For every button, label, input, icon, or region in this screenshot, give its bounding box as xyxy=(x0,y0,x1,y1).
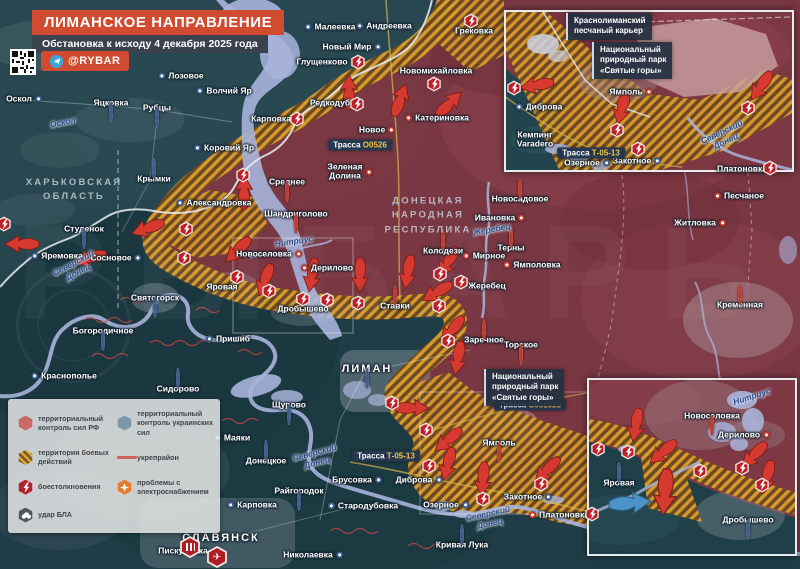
legend-icon-clashes xyxy=(18,480,33,495)
legend-label: территория боевых действий xyxy=(38,448,112,467)
map-title: ЛИМАНСКОЕ НАПРАВЛЕНИЕ xyxy=(32,10,284,35)
map-screenshot: РЫБАРЬ МалеевкаАндреевкаГрековкаНовый Ми… xyxy=(0,0,800,569)
legend-icon-fortified-line xyxy=(117,456,137,459)
inset-map-bottom-right xyxy=(587,378,797,556)
legend-label: территориальный контроль сил РФ xyxy=(38,414,112,433)
title-block: ЛИМАНСКОЕ НАПРАВЛЕНИЕ Обстановка к исход… xyxy=(32,10,284,53)
legend-label: укрепрайон xyxy=(137,453,219,462)
legend-icon-drone-strike xyxy=(18,508,33,523)
legend-label: удар БЛА xyxy=(38,510,112,519)
inset-map-top-right xyxy=(504,10,794,172)
legend-icon-rf-control xyxy=(18,416,33,431)
brand-badge: @RYBAR xyxy=(41,51,129,71)
legend-icon-power-outage xyxy=(117,480,132,495)
legend-label: боестолкновения xyxy=(38,482,112,491)
watermark-emblem xyxy=(16,268,131,383)
legend-label: территориальный контроль украинских сил xyxy=(137,409,219,437)
qr-code xyxy=(10,49,36,75)
legend-label: проблемы с электроснабжением xyxy=(137,478,219,497)
legend-panel: территориальный контроль сил РФ территор… xyxy=(8,399,220,533)
legend-icon-combat-zone xyxy=(18,450,33,465)
brand-handle: @RYBAR xyxy=(68,55,120,67)
legend-icon-ua-control xyxy=(117,416,132,431)
telegram-icon xyxy=(50,55,63,68)
